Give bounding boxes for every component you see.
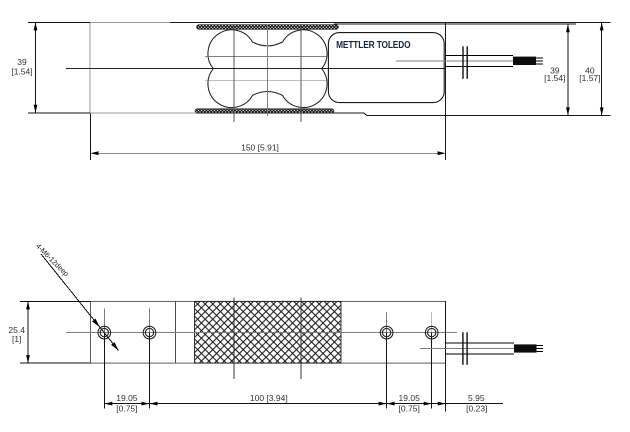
- svg-text:19.05: 19.05: [399, 393, 421, 403]
- svg-text:5.95: 5.95: [468, 393, 485, 403]
- svg-text:METTLER TOLEDO: METTLER TOLEDO: [336, 38, 410, 50]
- svg-text:39: 39: [17, 57, 27, 67]
- svg-text:[1.54]: [1.54]: [11, 67, 32, 77]
- svg-text:19.05: 19.05: [116, 393, 138, 403]
- svg-text:[0.75]: [0.75]: [116, 403, 137, 413]
- svg-text:[0.23]: [0.23]: [466, 403, 487, 413]
- svg-text:[0.75]: [0.75]: [399, 403, 420, 413]
- svg-text:[1.54]: [1.54]: [544, 73, 565, 83]
- svg-text:150 [5.91]: 150 [5.91]: [241, 142, 279, 152]
- svg-text:[1.57]: [1.57]: [579, 73, 600, 83]
- svg-text:100 [3.94]: 100 [3.94]: [250, 393, 288, 403]
- svg-text:[1]: [1]: [12, 334, 21, 344]
